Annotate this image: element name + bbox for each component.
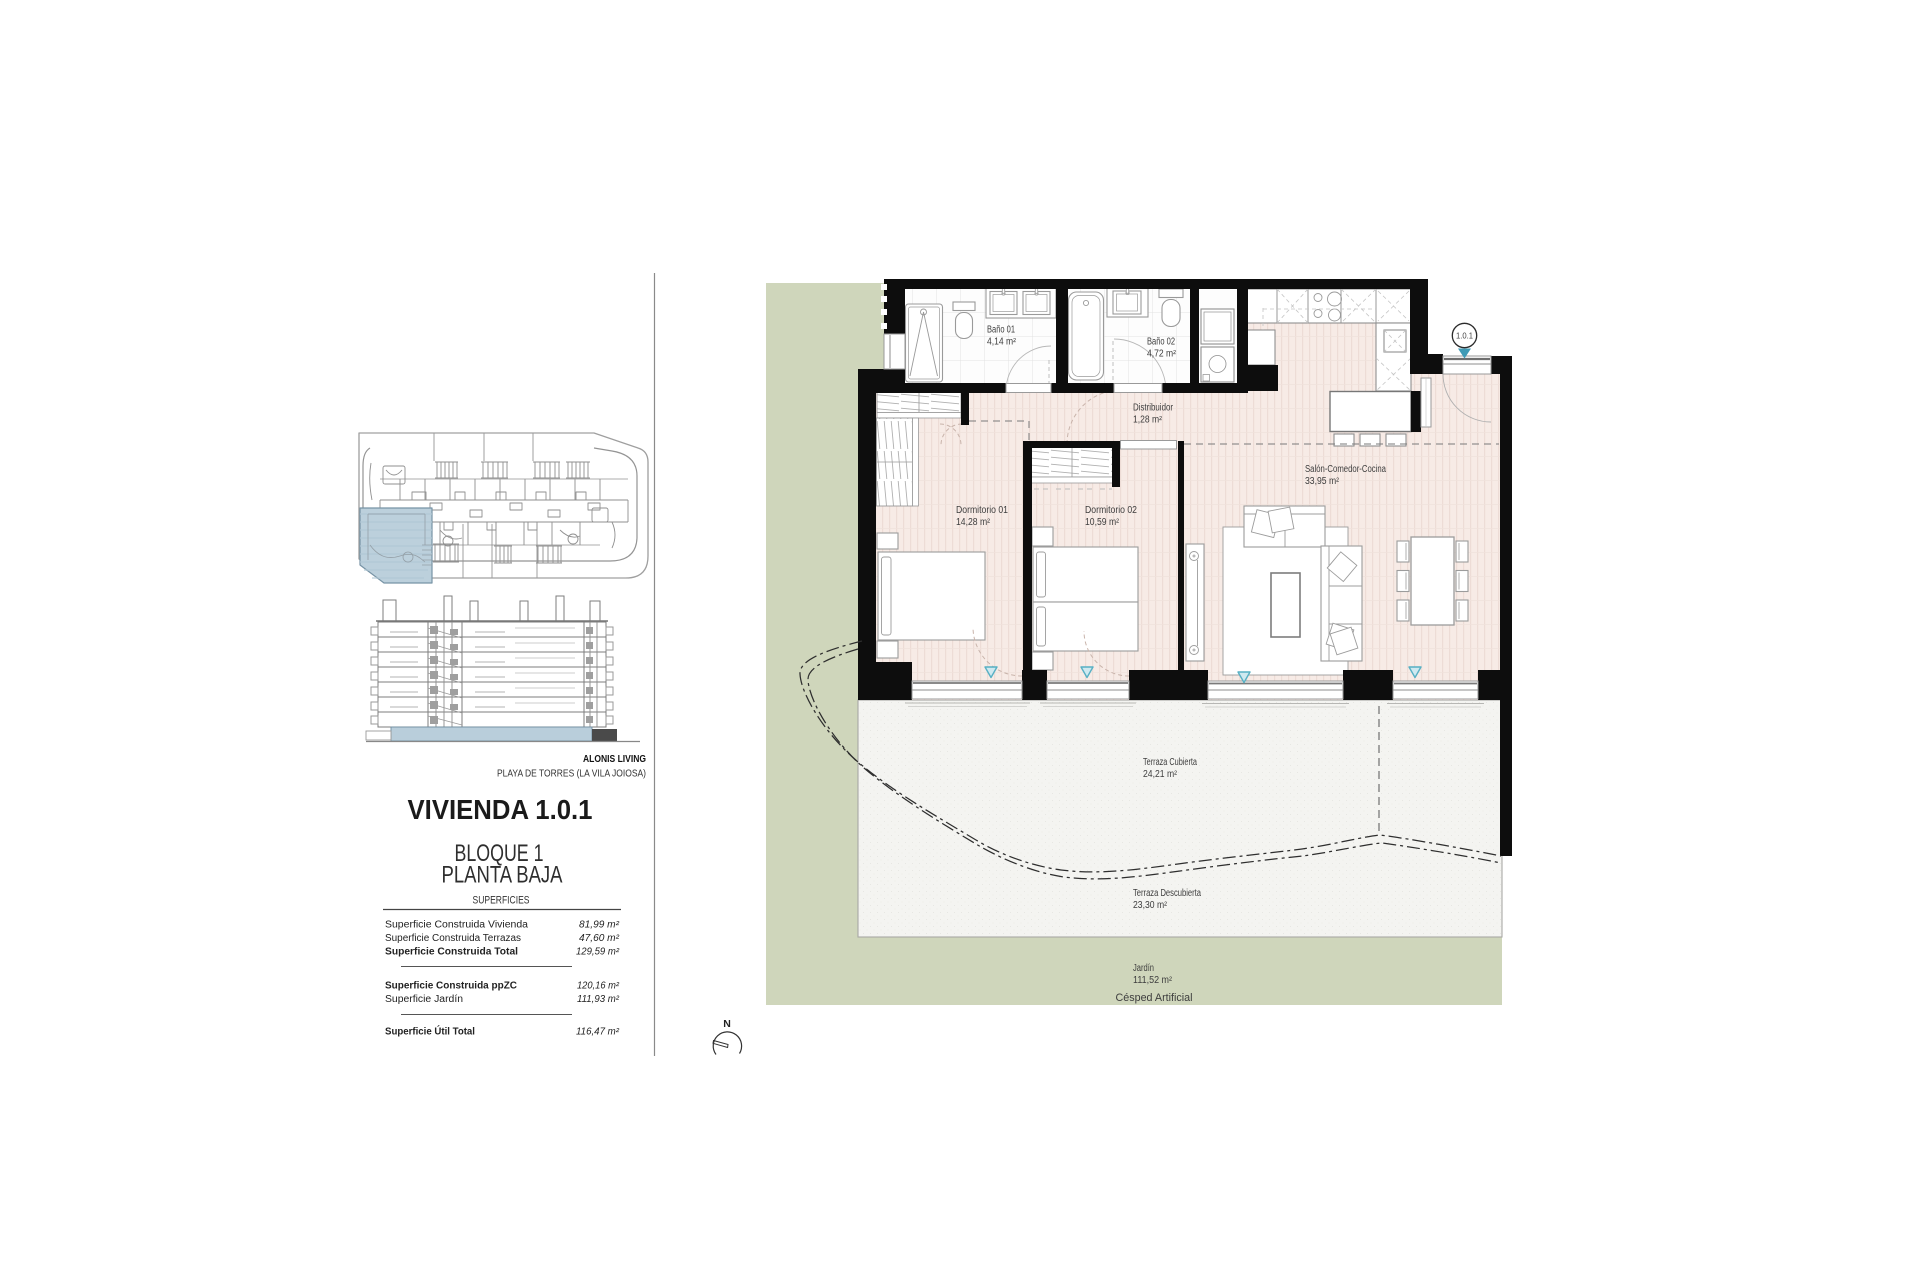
- svg-text:Baño 02: Baño 02: [1147, 337, 1175, 348]
- svg-text:116,47 m²: 116,47 m²: [576, 1027, 620, 1038]
- svg-text:Terraza Cubierta: Terraza Cubierta: [1143, 757, 1197, 768]
- svg-text:Superficie Jardín: Superficie Jardín: [385, 994, 463, 1005]
- svg-text:47,60 m²: 47,60 m²: [579, 933, 620, 944]
- svg-text:Dormitorio 01: Dormitorio 01: [956, 505, 1008, 516]
- svg-text:Superficie Construida Vivienda: Superficie Construida Vivienda: [385, 920, 528, 931]
- svg-text:111,52 m²: 111,52 m²: [1133, 975, 1173, 986]
- svg-text:SUPERFICIES: SUPERFICIES: [473, 895, 530, 907]
- svg-text:1,28 m²: 1,28 m²: [1133, 415, 1163, 426]
- svg-text:1.0.1: 1.0.1: [1456, 331, 1473, 341]
- svg-text:Dormitorio 02: Dormitorio 02: [1085, 505, 1137, 516]
- svg-text:4,14 m²: 4,14 m²: [987, 337, 1017, 348]
- svg-text:81,99 m²: 81,99 m²: [579, 920, 620, 931]
- svg-text:4,72 m²: 4,72 m²: [1147, 349, 1177, 360]
- svg-text:Superficie Construida ppZC: Superficie Construida ppZC: [385, 981, 517, 992]
- svg-text:33,95 m²: 33,95 m²: [1305, 476, 1340, 487]
- svg-text:Césped Artificial: Césped Artificial: [1116, 992, 1193, 1004]
- svg-text:23,30 m²: 23,30 m²: [1133, 900, 1168, 911]
- svg-text:Terraza Descubierta: Terraza Descubierta: [1133, 888, 1201, 899]
- svg-text:129,59 m²: 129,59 m²: [576, 947, 620, 958]
- svg-text:VIVIENDA 1.0.1: VIVIENDA 1.0.1: [408, 794, 593, 825]
- svg-text:Baño 01: Baño 01: [987, 325, 1015, 336]
- svg-text:PLANTA BAJA: PLANTA BAJA: [442, 862, 563, 889]
- svg-text:Superficie Construida Total: Superficie Construida Total: [385, 947, 518, 958]
- svg-text:Jardín: Jardín: [1133, 963, 1154, 974]
- svg-text:ALONIS LIVING: ALONIS LIVING: [583, 754, 646, 765]
- svg-text:24,21 m²: 24,21 m²: [1143, 769, 1178, 780]
- svg-text:Distribuidor: Distribuidor: [1133, 403, 1174, 414]
- svg-text:Salón-Comedor-Cocina: Salón-Comedor-Cocina: [1305, 464, 1386, 475]
- svg-text:PLAYA DE TORRES (LA VILA JOIOS: PLAYA DE TORRES (LA VILA JOIOSA): [497, 769, 646, 780]
- svg-text:Superficie Útil Total: Superficie Útil Total: [385, 1025, 475, 1038]
- svg-text:Superficie Construida Terrazas: Superficie Construida Terrazas: [385, 933, 521, 944]
- svg-text:120,16 m²: 120,16 m²: [577, 981, 620, 992]
- svg-text:111,93 m²: 111,93 m²: [577, 994, 620, 1005]
- svg-text:14,28 m²: 14,28 m²: [956, 517, 991, 528]
- svg-text:10,59 m²: 10,59 m²: [1085, 517, 1120, 528]
- svg-text:N: N: [723, 1018, 731, 1030]
